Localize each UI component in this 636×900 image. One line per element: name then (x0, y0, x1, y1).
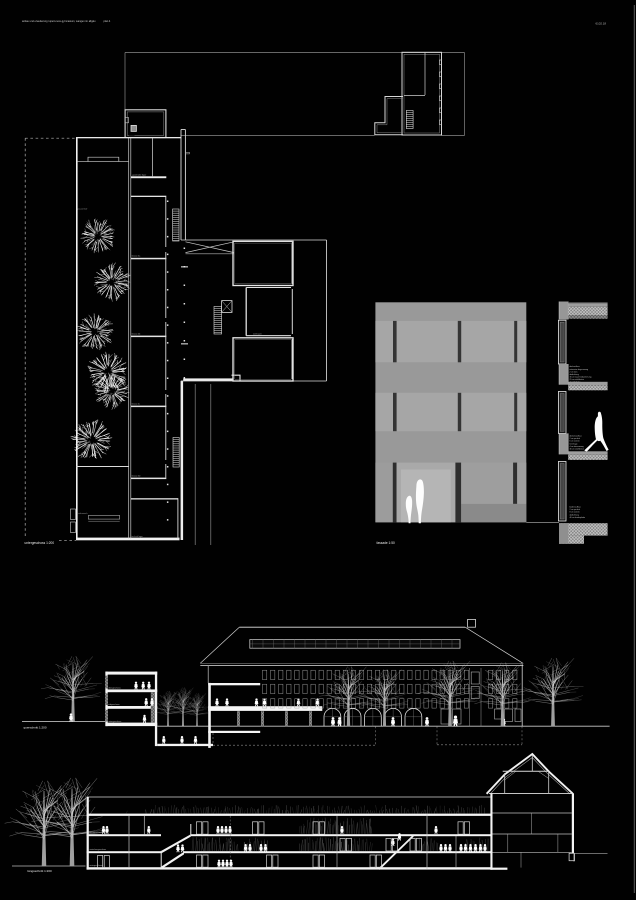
svg-text:25 cm stahlbeton: 25 cm stahlbeton (570, 378, 584, 381)
svg-text:zwischengeschoss: zwischengeschoss (90, 849, 107, 851)
svg-text:längsschnitt 1:200: längsschnitt 1:200 (28, 869, 53, 873)
svg-text:fassade 1:50: fassade 1:50 (377, 541, 395, 545)
svg-text:40 cm bodenplatte: 40 cm bodenplatte (570, 516, 586, 519)
svg-text:6 cm estrich: 6 cm estrich (570, 440, 580, 443)
svg-text:untergeschoss: untergeschoss (90, 864, 103, 867)
svg-text:querschnitt 1:200: querschnitt 1:200 (24, 726, 47, 730)
svg-text:trennlage: trennlage (570, 442, 578, 445)
svg-text:2 cm parkett: 2 cm parkett (570, 437, 581, 440)
svg-text:klasse 5b: klasse 5b (132, 333, 141, 335)
svg-text:obergeschoss: obergeschoss (90, 832, 102, 834)
svg-text:untergeschoss 1:200: untergeschoss 1:200 (25, 541, 55, 545)
svg-text:pausenhof: pausenhof (78, 209, 88, 211)
svg-text:2 cm parkett: 2 cm parkett (570, 508, 581, 511)
svg-text:werkraum: werkraum (253, 334, 262, 336)
svg-text:mehrzweck: mehrzweck (77, 512, 88, 515)
svg-text:extensive begruenung: extensive begruenung (570, 368, 589, 371)
svg-text:16 cm waermedaemmung: 16 cm waermedaemmung (570, 375, 592, 378)
svg-text:technik lager: technik lager (132, 535, 144, 538)
svg-text:8 cm estrich: 8 cm estrich (570, 511, 580, 514)
svg-text:garderobe foyer: garderobe foyer (132, 174, 146, 176)
svg-text:obergeschoss: obergeschoss (108, 688, 120, 690)
svg-text:klasse 5d: klasse 5d (132, 475, 140, 477)
svg-text:untergeschoss: untergeschoss (108, 720, 121, 723)
svg-text:erdgeschoss: erdgeschoss (108, 704, 119, 706)
svg-text:6102.18: 6102.18 (596, 22, 607, 26)
svg-text:klasse 5a: klasse 5a (132, 256, 141, 258)
svg-text:anbau und erweiterung rupert-n: anbau und erweiterung rupert-ness-gymnas… (22, 20, 96, 23)
svg-text:30 cm stahlbeton: 30 cm stahlbeton (570, 447, 584, 450)
svg-text:abdichtung: abdichtung (570, 513, 579, 516)
svg-text:abdichtung: abdichtung (570, 373, 579, 376)
svg-text:plan 4: plan 4 (104, 20, 111, 23)
svg-text:klasse 5c: klasse 5c (132, 403, 140, 405)
